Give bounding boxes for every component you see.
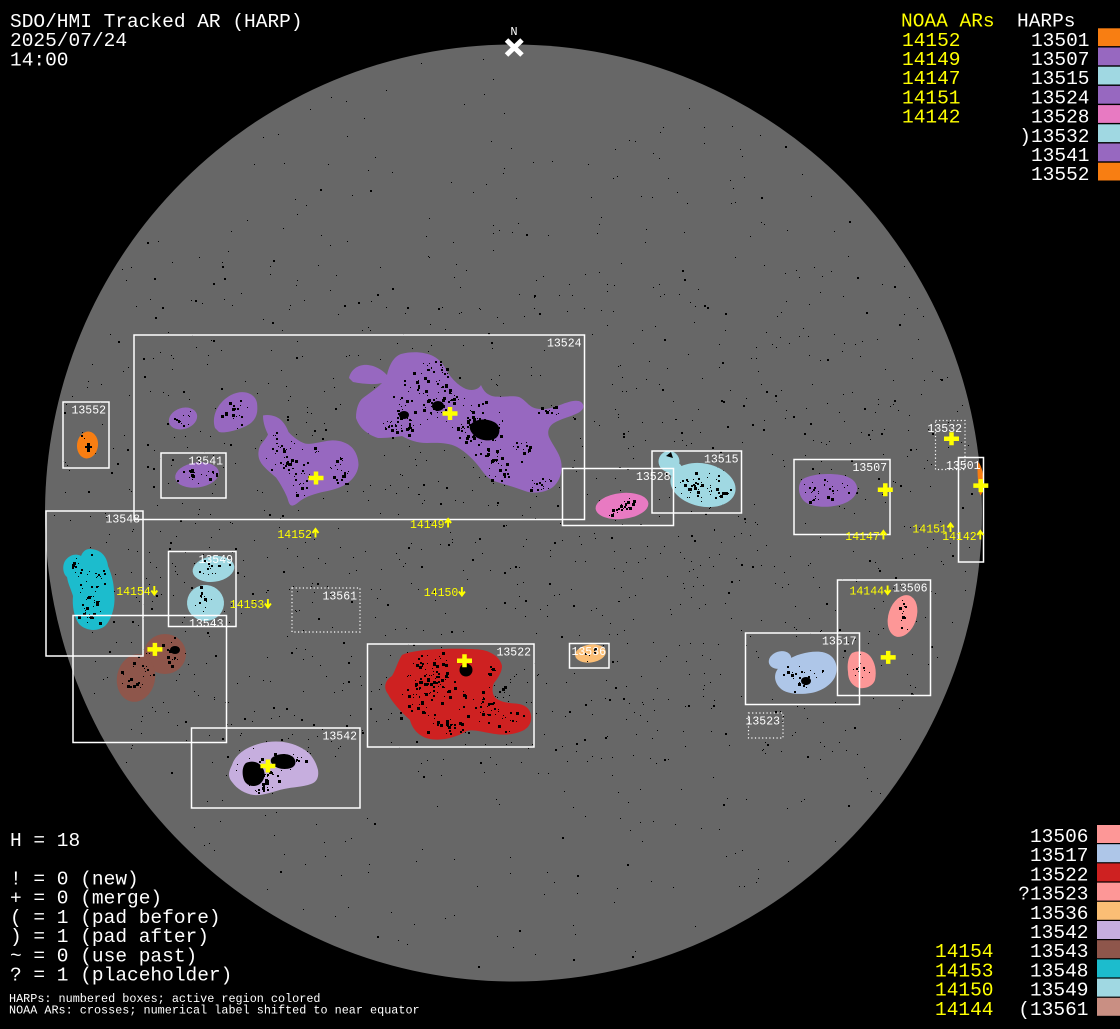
svg-text:14154: 14154 <box>116 586 151 599</box>
svg-text:14142: 14142 <box>902 107 961 129</box>
svg-text:13552: 13552 <box>1031 164 1090 186</box>
svg-text:13517: 13517 <box>822 636 857 649</box>
svg-text:13552: 13552 <box>71 405 106 418</box>
svg-text:13506: 13506 <box>893 583 928 596</box>
svg-text:13501: 13501 <box>946 460 981 473</box>
svg-text:13549: 13549 <box>198 554 233 567</box>
svg-text:13548: 13548 <box>105 514 140 527</box>
svg-text:14147: 14147 <box>845 531 880 544</box>
svg-text:13532: 13532 <box>927 423 962 436</box>
svg-text:H = 18: H = 18 <box>10 830 80 852</box>
svg-text:N: N <box>510 25 517 39</box>
svg-text:14153: 14153 <box>230 599 265 612</box>
svg-text:13507: 13507 <box>852 462 887 475</box>
svg-text:13524: 13524 <box>547 338 582 351</box>
svg-text:14142: 14142 <box>942 531 977 544</box>
svg-text:14:00: 14:00 <box>10 49 69 71</box>
svg-text:14152: 14152 <box>277 529 312 542</box>
svg-text:13561: 13561 <box>322 591 357 604</box>
svg-text:13523: 13523 <box>745 716 780 729</box>
svg-text:14150: 14150 <box>424 587 459 600</box>
svg-text:13515: 13515 <box>704 454 739 467</box>
svg-text:14149: 14149 <box>410 519 445 532</box>
svg-text:14144: 14144 <box>850 586 885 599</box>
svg-text:13541: 13541 <box>188 456 223 469</box>
svg-text:13522: 13522 <box>496 647 531 660</box>
svg-text:(13561: (13561 <box>1018 999 1088 1021</box>
svg-text:13528: 13528 <box>636 471 671 484</box>
svg-text:14144: 14144 <box>935 999 994 1021</box>
svg-text:? = 1 (placeholder): ? = 1 (placeholder) <box>10 965 232 987</box>
svg-text:13543: 13543 <box>189 618 224 631</box>
svg-text:NOAA ARs: crosses; numerical l: NOAA ARs: crosses; numerical label shift… <box>9 1004 420 1018</box>
svg-text:13536: 13536 <box>571 646 606 659</box>
svg-text:13542: 13542 <box>322 731 357 744</box>
